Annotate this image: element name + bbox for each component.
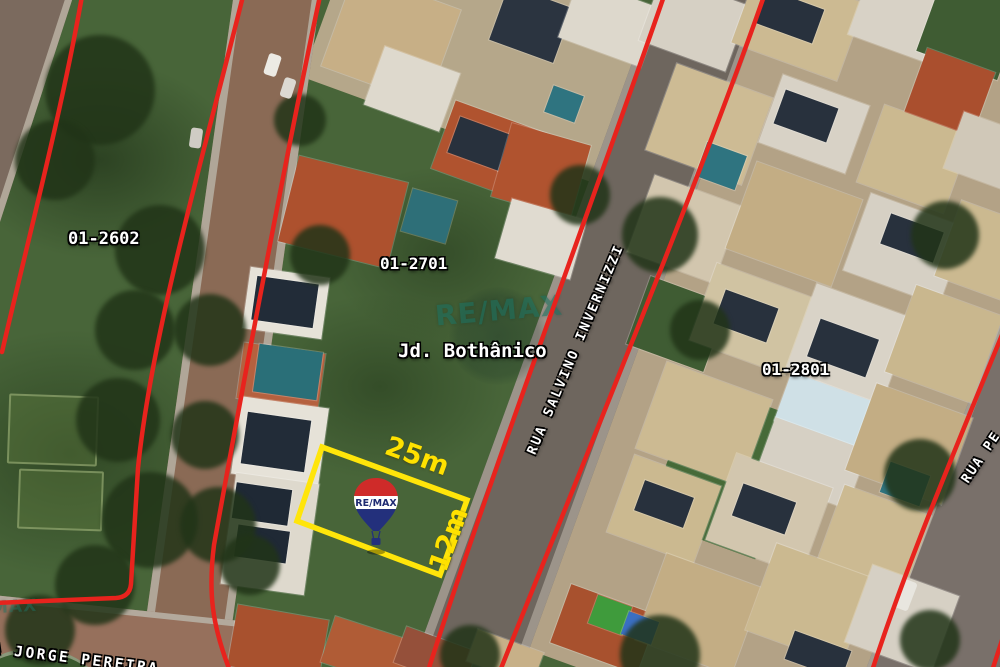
tree <box>220 535 280 595</box>
vehicle <box>189 127 204 148</box>
tree <box>115 205 205 295</box>
lot-label-01-2602: 01-2602 <box>68 229 140 249</box>
garden-patch <box>17 469 104 532</box>
aerial-map: RE/MAX MAX RE/MAX 01-26 <box>0 0 1000 667</box>
remax-watermark-corner: MAX <box>0 595 44 618</box>
tree <box>911 201 979 269</box>
remax-balloon-pin: RE/MAX <box>345 472 407 556</box>
balloon-brand-text: RE/MAX <box>355 498 397 509</box>
balloon-shadow <box>367 549 385 554</box>
tree <box>550 165 610 225</box>
neighborhood-label: Jd. Bothânico <box>398 340 547 362</box>
tree <box>900 610 960 667</box>
lot-label-01-2701: 01-2701 <box>380 254 447 273</box>
tree <box>290 225 350 285</box>
tree <box>171 401 239 469</box>
balloon-strings <box>372 531 380 538</box>
building <box>241 412 312 472</box>
tree <box>622 197 698 273</box>
tree <box>95 290 175 370</box>
tree <box>670 300 730 360</box>
tree <box>76 378 160 462</box>
tree <box>15 120 95 200</box>
building <box>253 344 323 400</box>
tree <box>174 294 246 366</box>
building <box>401 189 457 244</box>
tree <box>884 439 956 511</box>
lot-label-01-2801: 01-2801 <box>762 360 829 379</box>
building <box>251 276 319 328</box>
tree <box>274 94 326 146</box>
balloon-top-stripe <box>345 472 407 496</box>
balloon-bottom-stripe <box>345 509 407 534</box>
building <box>227 604 328 667</box>
balloon-basket <box>372 538 381 545</box>
